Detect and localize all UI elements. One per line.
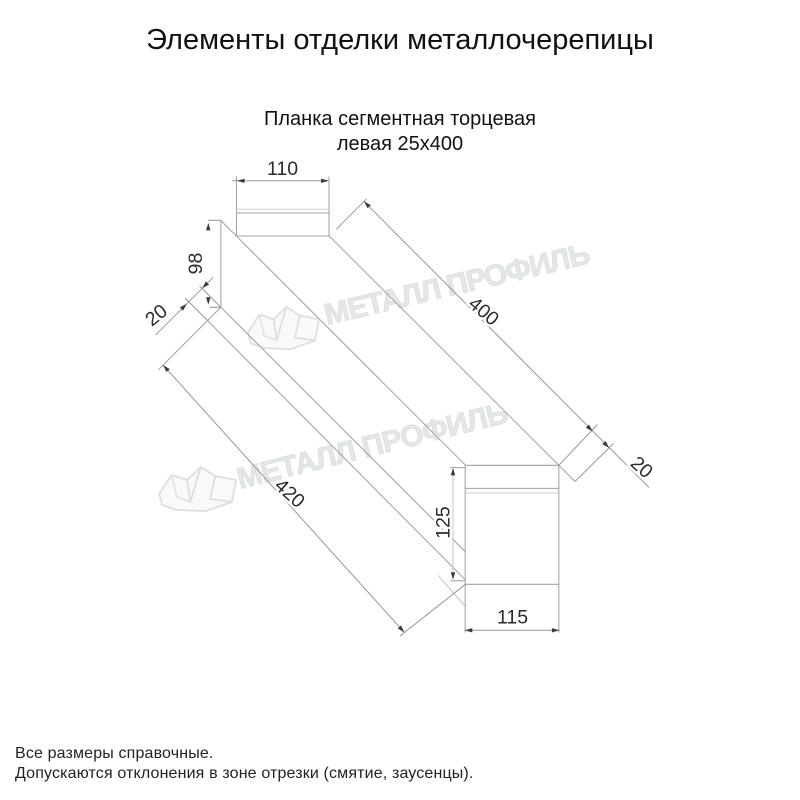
svg-text:20: 20: [141, 300, 172, 331]
svg-text:20: 20: [626, 452, 657, 483]
svg-text:МЕТАЛЛ ПРОФИЛЬ: МЕТАЛЛ ПРОФИЛЬ: [321, 238, 593, 332]
svg-text:98: 98: [185, 253, 207, 275]
svg-text:МЕТАЛЛ ПРОФИЛЬ: МЕТАЛЛ ПРОФИЛЬ: [234, 397, 512, 496]
svg-text:115: 115: [497, 607, 528, 629]
svg-text:110: 110: [267, 158, 298, 180]
svg-text:125: 125: [433, 506, 455, 539]
